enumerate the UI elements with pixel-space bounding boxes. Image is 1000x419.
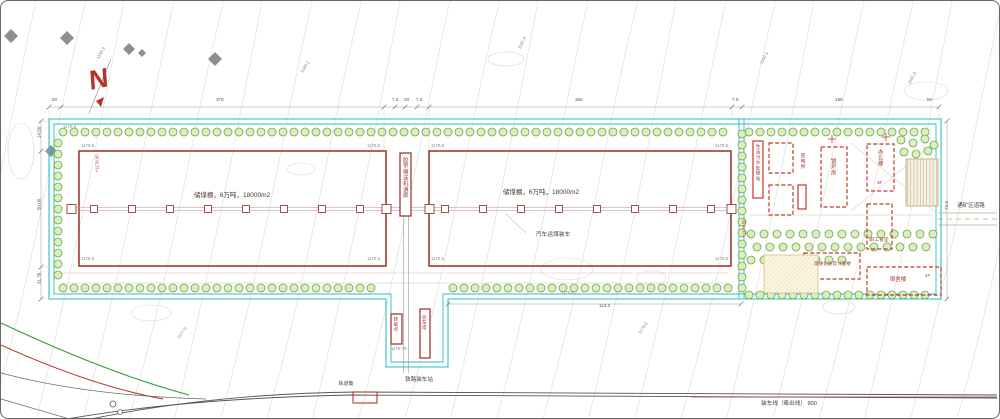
- tree-icon: [658, 284, 666, 292]
- tree-icon: [367, 128, 375, 136]
- tree-icon: [822, 291, 830, 299]
- tree-icon: [745, 291, 753, 299]
- shed-column: [319, 206, 326, 213]
- tree-icon: [581, 284, 589, 292]
- office-floors-label: 3F: [877, 181, 882, 186]
- contour-line: [817, 1, 915, 419]
- tree-icon: [191, 284, 199, 292]
- tree-icon: [334, 128, 342, 136]
- tree-icon: [760, 230, 768, 238]
- tree-icon: [81, 284, 89, 292]
- tree-icon: [235, 128, 243, 136]
- tree-icon: [125, 284, 133, 292]
- tree-icon: [844, 243, 852, 251]
- tree-icon: [301, 128, 309, 136]
- tree-icon: [738, 207, 746, 215]
- tree-icon: [482, 284, 490, 292]
- tree-icon: [125, 128, 133, 136]
- tree-icon: [587, 128, 595, 136]
- elevation-label: 1178.5: [431, 144, 444, 149]
- tree-icon: [169, 128, 177, 136]
- tree-icon: [323, 284, 331, 292]
- tree-icon: [54, 227, 62, 235]
- tree-icon: [900, 148, 908, 156]
- tree-icon: [738, 130, 746, 138]
- tree-icon: [738, 174, 746, 182]
- signal-icon: [118, 410, 123, 415]
- tree-icon: [766, 243, 774, 251]
- transfer-house-label: 转载点: [393, 317, 398, 343]
- tree-icon: [54, 194, 62, 202]
- tree-icon: [246, 284, 254, 292]
- tree-icon: [708, 128, 716, 136]
- tree-icon: [719, 128, 727, 136]
- tree-icon: [738, 152, 746, 160]
- tree-icon: [301, 284, 309, 292]
- tree-icon: [877, 230, 885, 238]
- dimension-label: 31.76: [37, 273, 42, 285]
- tree-icon: [724, 284, 732, 292]
- tree-icon: [521, 128, 529, 136]
- tree-icon: [54, 238, 62, 246]
- green-track-curve: [1, 323, 189, 395]
- substation: [798, 185, 806, 209]
- contour-lines: [1, 1, 1000, 419]
- tree-icon: [753, 243, 761, 251]
- tree-icon: [598, 128, 606, 136]
- tree-icon: [92, 284, 100, 292]
- tree-icon: [257, 128, 265, 136]
- tree-icon: [921, 135, 929, 143]
- right-shed-label: 储煤棚，6万吨，18000m2: [466, 190, 616, 197]
- tree-icon: [625, 284, 633, 292]
- tree-icon: [614, 284, 622, 292]
- canteen-label: 职工食堂: [865, 238, 893, 243]
- tree-icon: [268, 128, 276, 136]
- boiler-house-label: 锅炉房: [829, 158, 835, 198]
- tree-icon: [246, 128, 254, 136]
- elevation-label: 1178.5: [431, 257, 444, 262]
- dimension-label: 50: [52, 98, 57, 103]
- tree-icon: [103, 128, 111, 136]
- planned-building: [769, 143, 793, 173]
- tree-icon: [54, 249, 62, 257]
- shed-column: [480, 206, 487, 213]
- dimension-label: 113.0: [599, 304, 610, 309]
- tree-icon: [213, 128, 221, 136]
- tree-icon: [825, 230, 833, 238]
- dimension-label: 30: [404, 98, 409, 103]
- contour-line: [219, 1, 313, 419]
- tree-icon: [70, 284, 78, 292]
- tree-icon: [54, 139, 62, 147]
- tree-icon: [54, 172, 62, 180]
- tree-icon: [213, 284, 221, 292]
- tree-icon: [792, 243, 800, 251]
- tree-icon: [158, 284, 166, 292]
- tree-icon: [54, 271, 62, 279]
- tree-icon: [323, 128, 331, 136]
- tree-icon: [773, 230, 781, 238]
- tree-icon: [738, 284, 746, 292]
- tree-icon: [767, 128, 775, 136]
- dimension-label: 7.0: [392, 98, 398, 103]
- tree-icon: [180, 128, 188, 136]
- tree-icon: [54, 260, 62, 268]
- elevation-label: 1178.5: [367, 257, 380, 262]
- tree-icon: [897, 136, 905, 144]
- tree-icon: [444, 128, 452, 136]
- contour-line: [1, 1, 37, 419]
- tree-icon: [54, 161, 62, 169]
- truck-loading-leader: [506, 214, 526, 233]
- tree-icon: [800, 128, 808, 136]
- elevation-label: 1178.76: [391, 347, 407, 352]
- contour-line: [863, 1, 953, 419]
- tree-icon: [136, 284, 144, 292]
- tree-icon: [592, 284, 600, 292]
- hatched-yard: [764, 255, 818, 293]
- dormitory-label: 宿舍楼: [873, 278, 923, 284]
- tree-icon: [838, 230, 846, 238]
- elevation-label: 1178.5: [715, 144, 728, 149]
- tree-icon: [515, 284, 523, 292]
- dimension-label: 368: [575, 98, 583, 103]
- tree-icon: [888, 128, 896, 136]
- tree-icon: [504, 284, 512, 292]
- contour-blob: [8, 123, 34, 179]
- office-label: 办公楼: [876, 149, 882, 179]
- sewage-plant-label: 生活污水处理站: [755, 144, 760, 197]
- tree-icon: [312, 128, 320, 136]
- elevation-label: +1178.50: [743, 219, 748, 237]
- dimension-label: 7.0: [416, 98, 422, 103]
- tree-icon: [844, 128, 852, 136]
- tree-icon: [609, 128, 617, 136]
- tree-icon: [812, 230, 820, 238]
- tree-icon: [738, 185, 746, 193]
- tree-icon: [890, 230, 898, 238]
- tree-icon: [449, 284, 457, 292]
- tree-icon: [697, 128, 705, 136]
- tree-icon: [691, 284, 699, 292]
- tree-icon: [510, 128, 518, 136]
- tree-icon: [924, 147, 932, 155]
- tree-icon: [922, 243, 930, 251]
- shed-column: [594, 206, 601, 213]
- tree-icon: [786, 230, 794, 238]
- tree-icon: [738, 251, 746, 259]
- tree-icon: [367, 284, 375, 292]
- tree-icon: [930, 141, 938, 149]
- elevation-label: 1178.3: [63, 125, 76, 130]
- dormitory-floors-label: 4F: [925, 274, 930, 279]
- shed-portal: [67, 205, 76, 214]
- tree-icon: [378, 128, 386, 136]
- dimension-label: 50: [927, 98, 932, 103]
- tree-icon: [910, 128, 918, 136]
- dimension-label: 198: [835, 98, 843, 103]
- tree-icon: [202, 128, 210, 136]
- conveyor-gallery-label: 胶带输送机通廊: [401, 157, 407, 214]
- left-shed-label: 储煤棚，6万吨，18000m2: [157, 193, 307, 200]
- elevation-label: 1178.5: [81, 257, 94, 262]
- shed-column: [708, 206, 715, 213]
- shed-column: [670, 206, 677, 213]
- shed-portal: [727, 205, 736, 214]
- tree-icon: [92, 128, 100, 136]
- tree-icon: [54, 183, 62, 191]
- tree-icon: [290, 284, 298, 292]
- tree-icon: [747, 230, 755, 238]
- contour-line: [955, 1, 1000, 419]
- substation-label: 变电所: [800, 153, 805, 183]
- tree-icon: [356, 128, 364, 136]
- tree-icon: [912, 150, 920, 158]
- tree-icon: [345, 128, 353, 136]
- tree-icon: [460, 284, 468, 292]
- north-pointer-icon: [96, 97, 104, 107]
- tree-icon: [653, 128, 661, 136]
- track-scale-label: 轨道衡: [331, 382, 361, 387]
- tree-icon: [526, 284, 534, 292]
- shed-column: [281, 206, 288, 213]
- tree-icon: [877, 128, 885, 136]
- tree-icon: [268, 284, 276, 292]
- tree-icon: [647, 284, 655, 292]
- tree-icon: [870, 243, 878, 251]
- existing-structure-icon: [4, 29, 18, 43]
- tree-icon: [855, 128, 863, 136]
- tree-icon: [738, 141, 746, 149]
- tree-icon: [224, 128, 232, 136]
- tree-icon: [389, 128, 397, 136]
- east-road-label: 通矿区道路: [943, 204, 999, 210]
- loading-line-label: 装车线（牵出线） 900: [734, 402, 844, 408]
- tree-icon: [636, 284, 644, 292]
- tree-icon: [477, 128, 485, 136]
- tree-icon: [778, 128, 786, 136]
- contour-blob: [823, 300, 855, 314]
- site-plan-drawing: [1, 1, 1000, 419]
- tree-icon: [400, 128, 408, 136]
- shed-column: [129, 206, 136, 213]
- shed-column: [205, 206, 212, 213]
- tree-icon: [54, 205, 62, 213]
- tree-icon: [279, 284, 287, 292]
- tree-icon: [147, 284, 155, 292]
- tree-icon: [831, 243, 839, 251]
- tree-icon: [471, 284, 479, 292]
- tree-icon: [702, 284, 710, 292]
- elevation-label: 1179.0: [561, 291, 574, 296]
- tree-icon: [675, 128, 683, 136]
- tree-icon: [147, 128, 155, 136]
- tree-icon: [833, 291, 841, 299]
- truck-loading-label: 汽车运煤装车: [521, 232, 585, 238]
- shed-column: [357, 206, 364, 213]
- tree-icon: [779, 243, 787, 251]
- tree-icon: [631, 128, 639, 136]
- tree-icon: [290, 128, 298, 136]
- tree-icon: [488, 128, 496, 136]
- tree-icon: [664, 128, 672, 136]
- shed-column: [632, 206, 639, 213]
- tree-icon: [81, 128, 89, 136]
- tree-icon: [537, 284, 545, 292]
- tree-icon: [851, 230, 859, 238]
- tree-icon: [811, 128, 819, 136]
- tree-icon: [909, 139, 917, 147]
- loading-tower-label: 装车塔: [422, 315, 427, 355]
- tree-icon: [257, 284, 265, 292]
- tree-icon: [899, 128, 907, 136]
- tree-icon: [713, 284, 721, 292]
- tree-icon: [896, 243, 904, 251]
- contour-line: [265, 1, 363, 419]
- contour-line: [771, 1, 865, 419]
- tree-icon: [818, 243, 826, 251]
- dimension-label: 14.50: [37, 127, 42, 139]
- tree-icon: [466, 128, 474, 136]
- tree-icon: [180, 284, 188, 292]
- tree-icon: [312, 284, 320, 292]
- shed-column: [91, 206, 98, 213]
- tree-icon: [789, 128, 797, 136]
- tree-icon: [59, 284, 67, 292]
- dimension-label: 378: [216, 98, 224, 103]
- existing-structure-icon: [123, 43, 135, 55]
- shed-column: [442, 206, 449, 213]
- tree-icon: [136, 128, 144, 136]
- tree-icon: [866, 128, 874, 136]
- elevation-label: 1178.5: [367, 144, 380, 149]
- tree-icon: [864, 230, 872, 238]
- tree-icon: [756, 128, 764, 136]
- tree-icon: [738, 273, 746, 281]
- tree-icon: [565, 128, 573, 136]
- tree-icon: [642, 128, 650, 136]
- tree-icon: [543, 128, 551, 136]
- red-track-curve: [1, 345, 163, 399]
- tree-icon: [822, 128, 830, 136]
- shed-column: [556, 206, 563, 213]
- tree-icon: [114, 128, 122, 136]
- tree-icon: [158, 128, 166, 136]
- shed-column: [167, 206, 174, 213]
- tree-icon: [576, 128, 584, 136]
- contour-line: [909, 1, 1000, 419]
- tree-icon: [54, 216, 62, 224]
- tree-icon: [279, 128, 287, 136]
- tree-icon: [883, 243, 891, 251]
- tree-icon: [738, 240, 746, 248]
- tree-icon: [114, 284, 122, 292]
- dimension-label: 7.0: [732, 98, 738, 103]
- signal-icon: [110, 401, 116, 407]
- shed-column: [243, 206, 250, 213]
- tree-icon: [805, 243, 813, 251]
- rail-track: [1, 373, 206, 399]
- tree-icon: [455, 128, 463, 136]
- existing-structure-icon: [60, 31, 74, 45]
- tree-icon: [738, 196, 746, 204]
- shed-column: [518, 206, 525, 213]
- tree-icon: [603, 284, 611, 292]
- dimension-label: 74.0: [945, 201, 950, 210]
- contour-blob: [488, 52, 524, 66]
- lab-building-label: 煤质化验及计量楼: [805, 262, 860, 267]
- tree-icon: [738, 163, 746, 171]
- contour-blob: [541, 258, 593, 280]
- tree-icon: [191, 128, 199, 136]
- contour-blob: [131, 305, 171, 321]
- shed-portal: [382, 205, 391, 214]
- elevation-label: +1178.50: [96, 154, 101, 172]
- tree-icon: [680, 284, 688, 292]
- contour-blob: [287, 163, 315, 175]
- tree-icon: [738, 262, 746, 270]
- tree-icon: [686, 128, 694, 136]
- tree-icon: [548, 284, 556, 292]
- existing-structure-icon: [208, 52, 222, 66]
- contour-line: [495, 1, 589, 419]
- tree-icon: [747, 256, 755, 264]
- rail-station-label: 铁路装车站: [393, 378, 445, 384]
- tree-icon: [356, 284, 364, 292]
- elevation-label: 1178.5: [715, 257, 728, 262]
- tree-icon: [799, 230, 807, 238]
- tree-icon: [929, 230, 937, 238]
- tree-icon: [103, 284, 111, 292]
- tree-icon: [169, 284, 177, 292]
- tree-icon: [669, 284, 677, 292]
- tree-icon: [909, 243, 917, 251]
- tree-icon: [433, 128, 441, 136]
- elevation-label: 1178.5: [81, 144, 94, 149]
- tree-icon: [833, 128, 841, 136]
- coal-shed-right: [429, 151, 731, 266]
- contour-line: [449, 1, 539, 419]
- tree-icon: [334, 284, 342, 292]
- tree-icon: [756, 291, 764, 299]
- tree-icon: [554, 128, 562, 136]
- tree-icon: [857, 243, 865, 251]
- tree-icon: [345, 284, 353, 292]
- north-letter: N: [88, 63, 109, 96]
- tree-icon: [224, 284, 232, 292]
- tree-icon: [844, 291, 852, 299]
- planned-building: [769, 185, 793, 215]
- tree-icon: [916, 230, 924, 238]
- existing-structure-icon: [138, 49, 146, 57]
- coal-shed-left: [79, 151, 386, 266]
- tree-icon: [532, 128, 540, 136]
- tree-icon: [202, 284, 210, 292]
- tree-icon: [499, 128, 507, 136]
- dimension-label: 50.00: [37, 199, 42, 211]
- shed-portal: [425, 205, 434, 214]
- tree-icon: [411, 128, 419, 136]
- tree-icon: [54, 150, 62, 158]
- tree-icon: [235, 284, 243, 292]
- tree-icon: [493, 284, 501, 292]
- site-plan-page: N 储煤棚，6万吨，18000m2 储煤棚，6万吨，18000m2 汽车运煤装车…: [0, 0, 1000, 419]
- tree-icon: [620, 128, 628, 136]
- tree-icon: [903, 230, 911, 238]
- tree-icon: [855, 291, 863, 299]
